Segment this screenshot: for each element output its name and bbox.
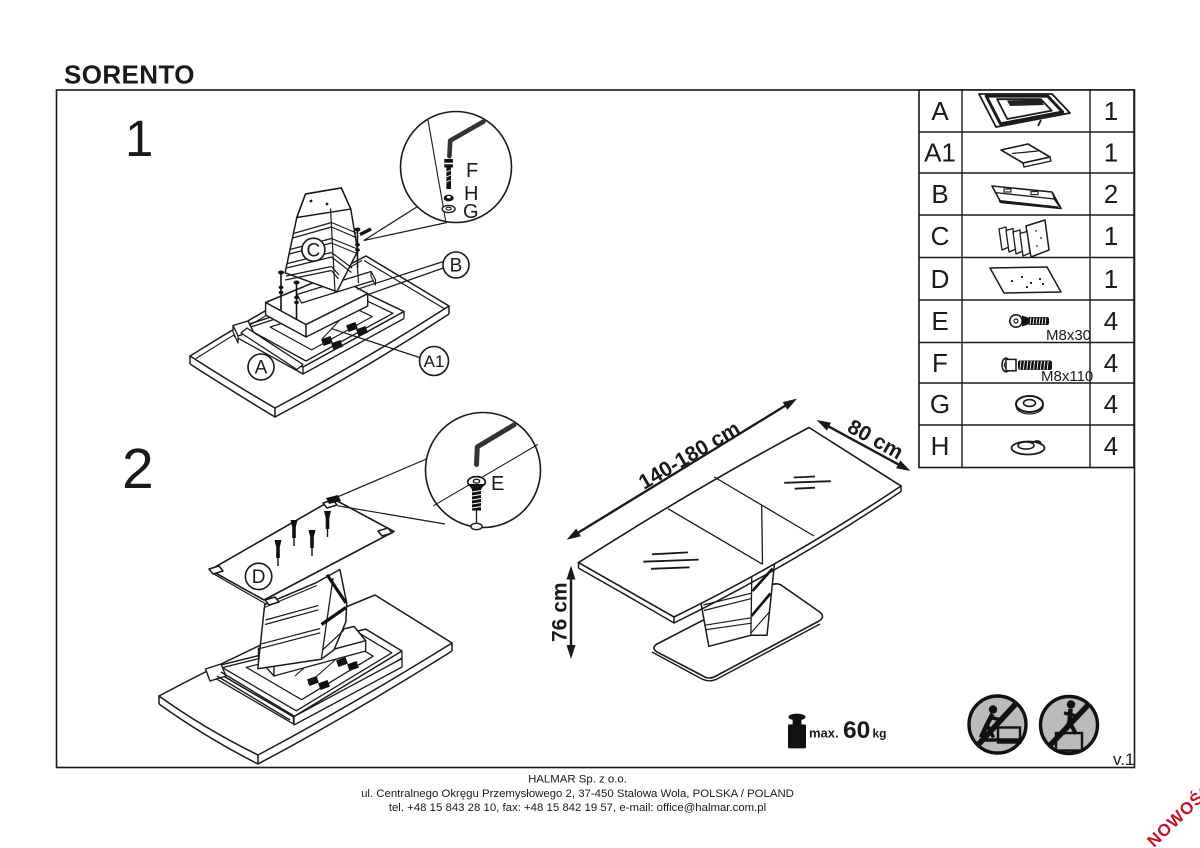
svg-text:C: C (307, 240, 321, 261)
svg-text:A1: A1 (924, 138, 956, 168)
svg-text:ul. Centralnego Okręgu Przemys: ul. Centralnego Okręgu Przemysłowego 2, … (361, 788, 794, 800)
svg-text:1: 1 (1104, 264, 1118, 294)
svg-text:A: A (255, 358, 268, 379)
svg-text:D: D (252, 567, 266, 588)
svg-text:1: 1 (125, 110, 153, 167)
svg-text:4: 4 (1104, 389, 1118, 419)
svg-text:M8x110: M8x110 (1041, 368, 1093, 385)
svg-text:E: E (491, 473, 504, 495)
svg-text:SORENTO: SORENTO (64, 60, 195, 90)
svg-text:max.: max. (809, 726, 839, 741)
svg-text:H: H (931, 431, 950, 461)
svg-text:2: 2 (122, 437, 154, 501)
svg-text:B: B (931, 179, 948, 209)
svg-text:1: 1 (1104, 138, 1118, 168)
svg-text:E: E (931, 306, 948, 336)
svg-text:76 cm: 76 cm (549, 582, 572, 642)
svg-text:kg: kg (873, 727, 887, 741)
svg-text:HALMAR Sp. z o.o.: HALMAR Sp. z o.o. (528, 774, 627, 786)
svg-text:F: F (466, 160, 478, 182)
svg-text:B: B (450, 256, 463, 277)
svg-text:4: 4 (1104, 306, 1118, 336)
svg-text:1: 1 (1104, 221, 1118, 251)
svg-text:v.1: v.1 (1113, 750, 1134, 769)
svg-text:A1: A1 (424, 352, 445, 371)
svg-text:F: F (932, 348, 948, 378)
svg-text:4: 4 (1104, 431, 1118, 461)
svg-text:60: 60 (843, 717, 870, 744)
svg-text:M8x30: M8x30 (1046, 327, 1091, 344)
svg-text:A: A (931, 96, 949, 126)
svg-text:D: D (931, 264, 950, 294)
svg-text:G: G (930, 389, 950, 419)
svg-text:C: C (931, 221, 950, 251)
svg-text:1: 1 (1104, 96, 1118, 126)
svg-text:tel. +48 15 843 28 10, fax: +4: tel. +48 15 843 28 10, fax: +48 15 842 1… (389, 802, 766, 814)
svg-text:G: G (463, 201, 479, 223)
svg-text:4: 4 (1104, 348, 1118, 378)
svg-text:2: 2 (1104, 179, 1118, 209)
